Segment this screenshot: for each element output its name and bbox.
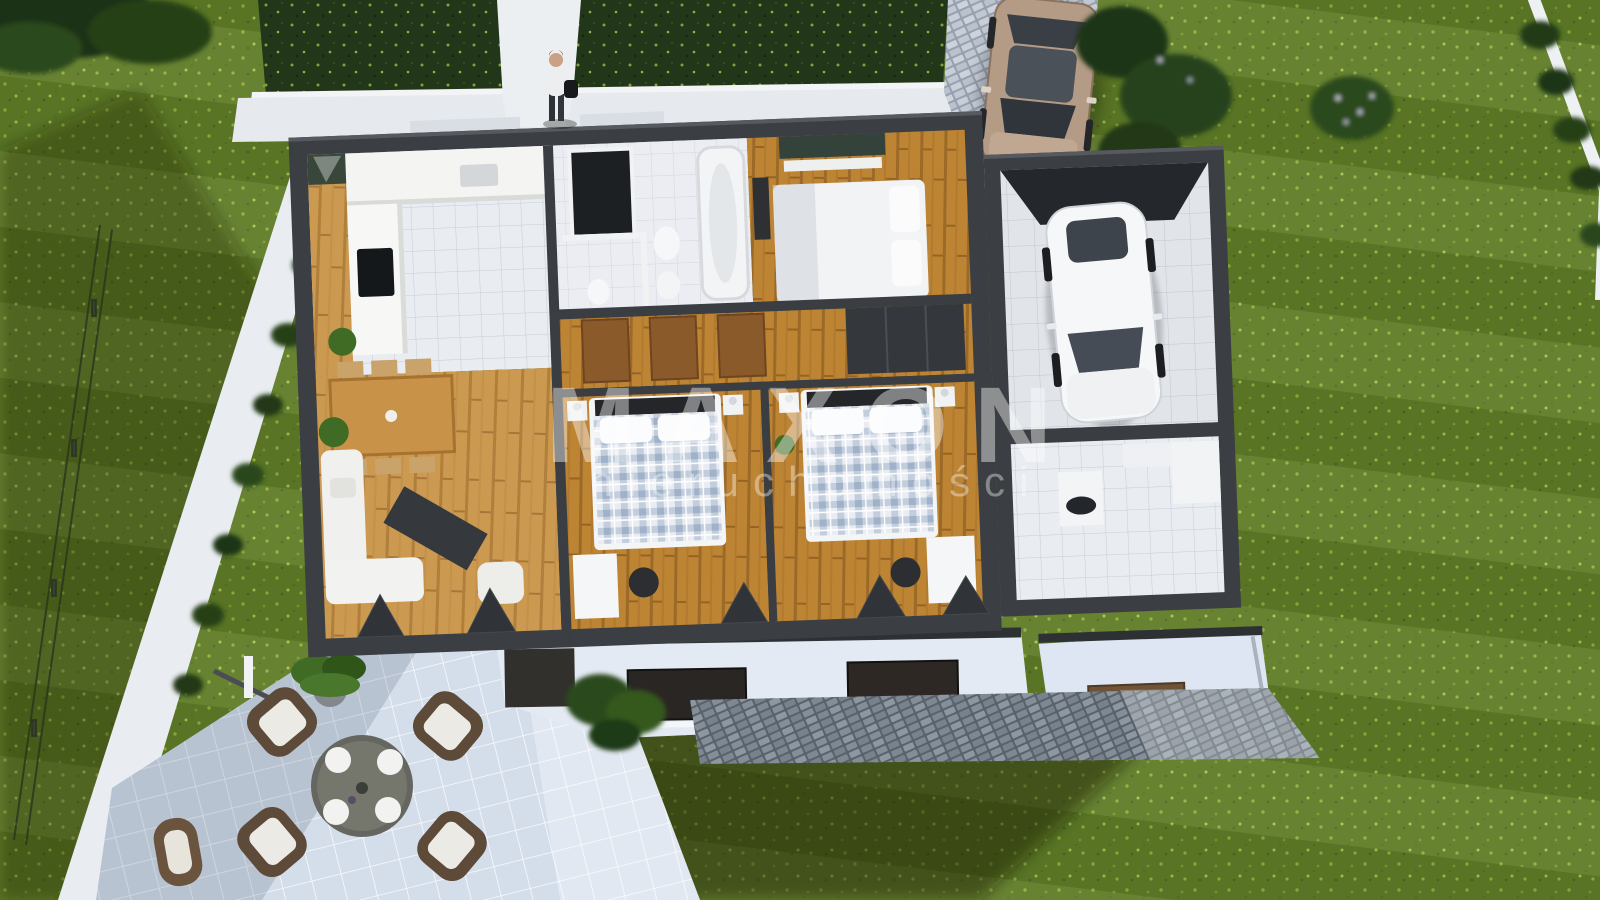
aerial-house-render: MAXON nieruchomości [0, 0, 1600, 900]
terrace-post [244, 656, 253, 698]
shower [569, 149, 634, 237]
facade-glass-door [504, 648, 575, 707]
kitchen [307, 146, 559, 377]
car-roof-glass [1005, 45, 1078, 104]
watermark-subtitle: nieruchomości [590, 458, 1043, 505]
pouf [477, 561, 525, 605]
car-roof-glass [1065, 216, 1129, 263]
sofa-chaise [325, 557, 425, 605]
bedroom-window [779, 133, 886, 159]
bedroom-small [747, 130, 971, 308]
dresser [752, 177, 770, 240]
bag [564, 80, 578, 98]
bathroom [551, 138, 753, 315]
kitchen-sink [460, 164, 499, 187]
cooktop [357, 248, 395, 297]
living-room [315, 354, 561, 639]
hedge-top [258, 0, 948, 96]
desk [573, 553, 619, 619]
flowering-bush [1310, 76, 1394, 140]
scene-canvas: MAXON nieruchomości [0, 0, 1600, 900]
car-windshield [1068, 327, 1147, 374]
walkway-entrance [497, 0, 581, 128]
